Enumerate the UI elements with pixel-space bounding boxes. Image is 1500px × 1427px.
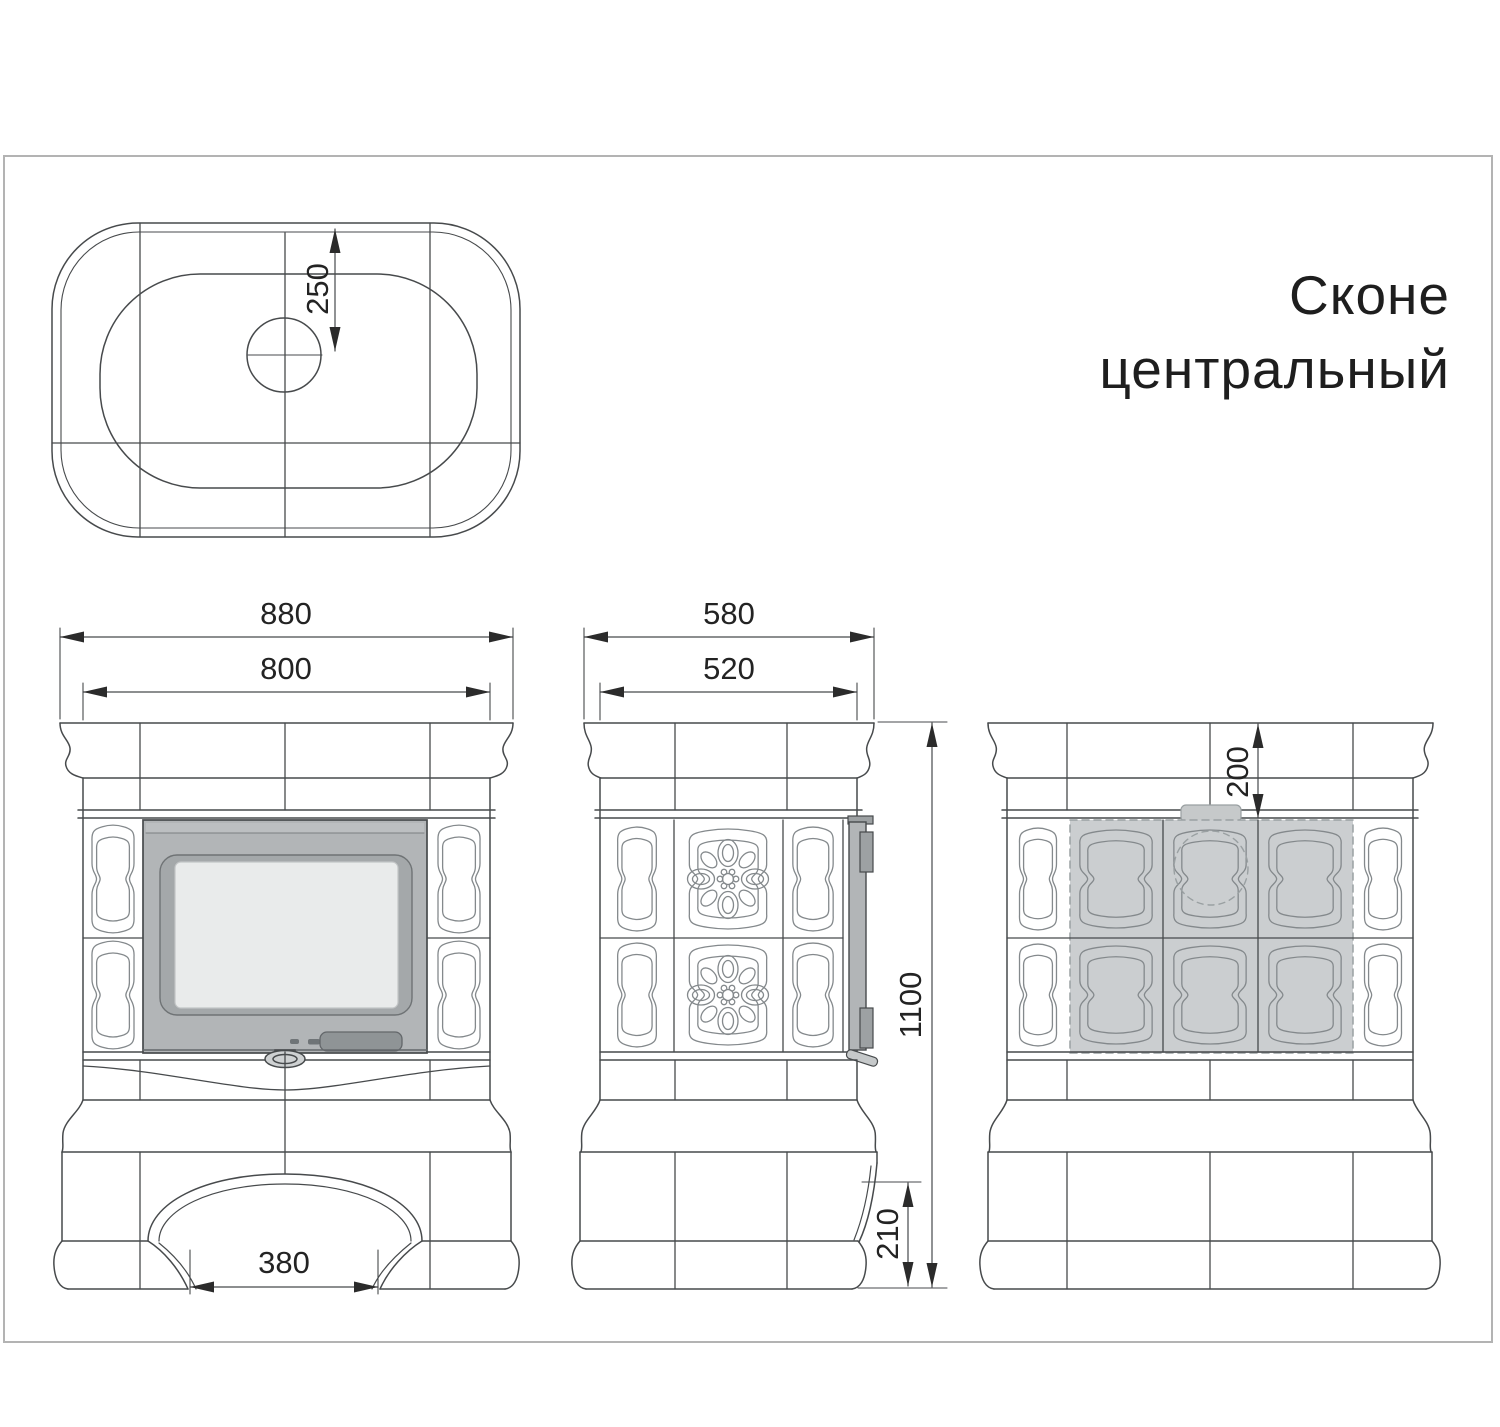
stove-technical-drawing: Сконе центральный [0, 0, 1500, 1427]
top-view-surface-edge [100, 274, 477, 488]
front-view [54, 628, 519, 1294]
door-vent-slot [308, 1039, 320, 1045]
side-cornice-joints [675, 723, 787, 810]
door-glass [175, 862, 398, 1008]
rear-cutout-inner [854, 1166, 871, 1240]
foot-arch-edge [380, 1241, 422, 1289]
back-cornice-joints [1067, 723, 1353, 810]
side-extension-lines [584, 628, 947, 1288]
side-plinth-joints [675, 1152, 787, 1289]
door-handle [320, 1032, 402, 1051]
dim-label-380: 380 [258, 1245, 310, 1280]
side-band-joints [675, 1060, 787, 1100]
arch-inner [159, 1184, 411, 1241]
drawing-title: Сконе центральный [1099, 264, 1450, 400]
dimension-labels: 880 800 380 580 520 250 1100 210 200 [258, 263, 1255, 1280]
dim-label-580: 580 [703, 596, 755, 631]
title-line-2: центральный [1099, 338, 1450, 400]
dim-label-880: 880 [260, 596, 312, 631]
side-view [572, 628, 947, 1289]
title-line-1: Сконе [1289, 264, 1450, 326]
dim-label-800: 800 [260, 651, 312, 686]
top-view-outer-edge [52, 223, 520, 537]
top-view [52, 223, 520, 537]
rosette-ornament [688, 956, 769, 1035]
top-view-inner-edge [61, 232, 511, 528]
hinge-knuckle [860, 1008, 873, 1048]
back-plinth-joints [1067, 1152, 1353, 1289]
top-view-tile-grid [52, 223, 520, 537]
fire-door [143, 820, 427, 1053]
back-view [980, 723, 1440, 1289]
dim-label-520: 520 [703, 651, 755, 686]
dim-label-200: 200 [1220, 746, 1255, 798]
dim-label-250: 250 [300, 263, 335, 315]
dim-label-1100: 1100 [893, 972, 928, 1039]
frame-border [4, 156, 1492, 1342]
door-latch-lever [845, 1049, 878, 1067]
front-cornice-joints [140, 723, 430, 810]
side-tile-grid [600, 820, 843, 1052]
door-vent-slot [290, 1039, 299, 1044]
hinge-knuckle [860, 832, 873, 872]
door-side-profile [845, 816, 878, 1067]
side-tile-ornaments [618, 827, 834, 1047]
dim-label-210: 210 [870, 1208, 905, 1260]
rosette-ornament [688, 840, 769, 919]
back-band-joints [1067, 1060, 1353, 1100]
front-band-joints [140, 1052, 430, 1174]
shelf-curve [83, 1066, 490, 1090]
heat-shield-panel [1070, 820, 1353, 1053]
